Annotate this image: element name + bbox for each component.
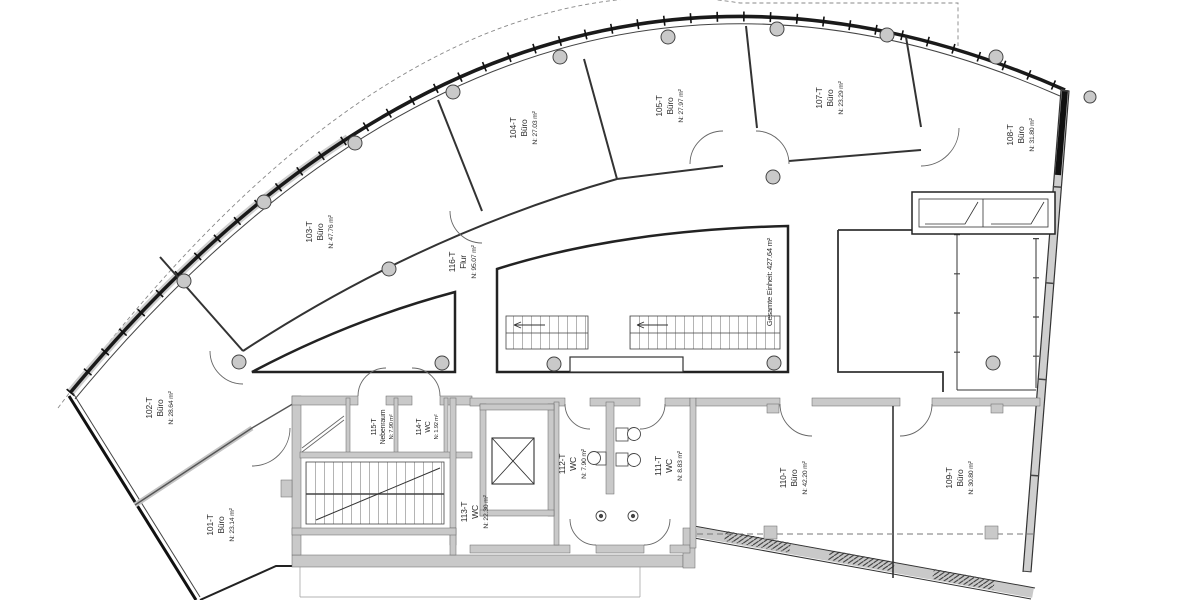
room-label-109: 109-TBüroN: 30.80 m²: [944, 460, 975, 494]
svg-text:Büro: Büro: [955, 469, 965, 487]
svg-text:N: 27.03 m²: N: 27.03 m²: [532, 110, 539, 144]
svg-text:N: 8.83 m²: N: 8.83 m²: [677, 450, 684, 481]
svg-text:Büro: Büro: [155, 399, 165, 417]
room-label-103: 103-TBüroN: 47.76 m²: [304, 214, 335, 248]
svg-text:Büro: Büro: [789, 469, 799, 487]
svg-text:101-T: 101-T: [205, 514, 215, 535]
elevator: [480, 404, 554, 516]
room-label-111: 111-TWCN: 8.83 m²: [653, 450, 684, 481]
radiator: [281, 480, 292, 497]
svg-text:Büro: Büro: [315, 223, 325, 241]
svg-text:114-T: 114-T: [416, 418, 423, 436]
svg-text:Büro: Büro: [665, 97, 675, 115]
svg-text:104-T: 104-T: [508, 117, 518, 138]
svg-text:WC: WC: [470, 505, 480, 519]
svg-text:115-T: 115-T: [371, 418, 378, 436]
svg-text:N: 23.29 m²: N: 23.29 m²: [838, 80, 845, 114]
svg-text:110-T: 110-T: [778, 468, 788, 489]
svg-text:N: 42.20 m²: N: 42.20 m²: [802, 460, 809, 494]
svg-text:Gesamte Einheit: 427.64 m²: Gesamte Einheit: 427.64 m²: [765, 237, 774, 326]
svg-text:N: 23.14 m²: N: 23.14 m²: [229, 507, 236, 541]
svg-text:108-T: 108-T: [1005, 124, 1015, 145]
svg-text:112-T: 112-T: [557, 454, 567, 475]
room-label-113: 113-TWCN: 22.30 m²: [459, 494, 490, 528]
total-area-label: Gesamte Einheit: 427.64 m²: [765, 237, 774, 326]
svg-text:107-T: 107-T: [814, 87, 824, 108]
room-label-112: 112-TWCN: 7.90 m²: [557, 448, 588, 479]
stair-hall: [497, 226, 788, 372]
svg-text:N: 27.97 m²: N: 27.97 m²: [678, 88, 685, 122]
svg-text:N: 31.80 m²: N: 31.80 m²: [1029, 117, 1036, 151]
room-label-116: 116-TFlurN: 95.07 m²: [447, 244, 478, 278]
svg-text:Büro: Büro: [519, 119, 529, 137]
svg-text:N: 95.07 m²: N: 95.07 m²: [471, 244, 478, 278]
svg-text:Nebenraum: Nebenraum: [380, 409, 387, 444]
east-wing: [838, 192, 1055, 392]
room-label-110: 110-TBüroN: 42.20 m²: [778, 460, 809, 494]
svg-text:Büro: Büro: [216, 516, 226, 534]
svg-text:Büro: Büro: [825, 89, 835, 107]
corridor-wedge: [252, 292, 455, 372]
facade-east: [1023, 90, 1069, 572]
room-label-108: 108-TBüroN: 31.80 m²: [1005, 117, 1036, 151]
facade-south: [292, 526, 1035, 599]
svg-text:N: 47.76 m²: N: 47.76 m²: [328, 214, 335, 248]
svg-text:N: 7.90 m²: N: 7.90 m²: [581, 448, 588, 479]
room-label-115: 115-TNebenraumN: 7.90 m²: [371, 409, 395, 444]
room-label-107: 107-TBüroN: 23.29 m²: [814, 80, 845, 114]
svg-text:113-T: 113-T: [459, 502, 469, 523]
svg-text:N: 1.92 m²: N: 1.92 m²: [434, 414, 440, 439]
svg-text:102-T: 102-T: [144, 397, 154, 418]
svg-text:WC: WC: [425, 421, 432, 432]
kitchenette: [912, 192, 1055, 234]
svg-text:N: 7.90 m²: N: 7.90 m²: [389, 414, 395, 439]
svg-text:Flur: Flur: [458, 255, 468, 269]
svg-text:N: 22.30 m²: N: 22.30 m²: [483, 494, 490, 528]
svg-text:105-T: 105-T: [654, 95, 664, 116]
room-label-101: 101-TBüroN: 23.14 m²: [205, 507, 236, 541]
room-label-104: 104-TBüroN: 27.03 m²: [508, 110, 539, 144]
room-label-114: 114-TWCN: 1.92 m²: [416, 414, 440, 439]
svg-text:N: 28.64 m²: N: 28.64 m²: [168, 390, 175, 424]
svg-text:WC: WC: [664, 459, 674, 473]
svg-text:WC: WC: [568, 457, 578, 471]
svg-text:N: 30.80 m²: N: 30.80 m²: [968, 460, 975, 494]
room-label-105: 105-TBüroN: 27.97 m²: [654, 88, 685, 122]
svg-text:111-T: 111-T: [653, 456, 663, 476]
svg-text:116-T: 116-T: [447, 252, 457, 273]
svg-text:109-T: 109-T: [944, 467, 954, 488]
svg-text:103-T: 103-T: [304, 221, 314, 242]
south-offices: [696, 398, 1040, 578]
floor-plan: 101-TBüroN: 23.14 m² 102-TBüroN: 28.64 m…: [0, 0, 1200, 600]
svg-text:Büro: Büro: [1016, 126, 1026, 144]
service-core: [281, 396, 696, 555]
room-label-102: 102-TBüroN: 28.64 m²: [144, 390, 175, 424]
